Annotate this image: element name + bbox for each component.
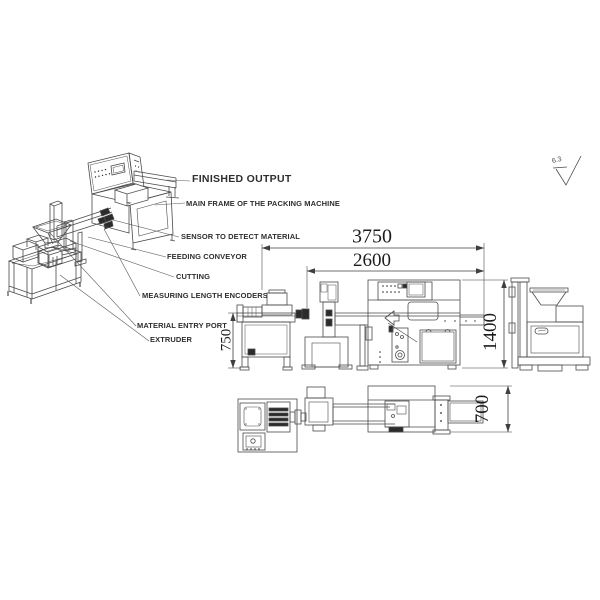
dimension-extruder-height: 750 [219, 329, 236, 352]
callout-main-frame: MAIN FRAME OF THE PACKING MACHINE [186, 199, 340, 208]
dimension-overall-length: 3750 [352, 226, 392, 249]
dimension-machine-length: 2600 [353, 250, 391, 272]
front-view [237, 280, 484, 370]
callout-feeding-conveyor: FEEDING CONVEYOR [167, 252, 247, 261]
callout-sensor: SENSOR TO DETECT MATERIAL [181, 232, 300, 241]
dimension-machine-width: 700 [472, 395, 494, 424]
callout-measuring-encoders: MEASURING LENGTH ENCODERS [142, 291, 268, 300]
engineering-drawing: FINISHED OUTPUT MAIN FRAME OF THE PACKIN… [0, 0, 600, 600]
callout-finished-output: FINISHED OUTPUT [192, 173, 292, 185]
dimension-machine-height: 1400 [480, 313, 502, 351]
callout-material-entry: MATERIAL ENTRY PORT [137, 321, 227, 330]
callout-cutting: CUTTING [176, 272, 210, 281]
iso-view [8, 153, 190, 341]
drawing-linework [0, 0, 600, 600]
plan-view [238, 386, 483, 452]
callout-extruder: EXTRUDER [150, 335, 192, 344]
side-view [509, 278, 590, 371]
